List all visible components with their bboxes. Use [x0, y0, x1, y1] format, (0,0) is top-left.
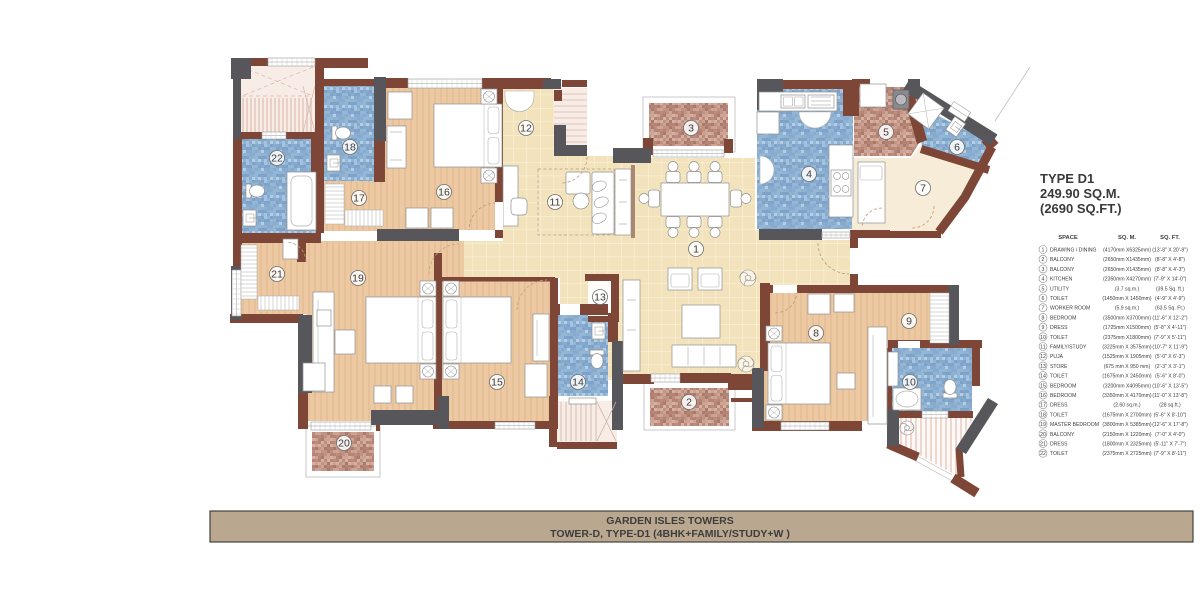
svg-text:20: 20 [338, 438, 350, 450]
svg-text:KITCHEN: KITCHEN [1050, 277, 1073, 283]
svg-text:(5'-11" X 7'-7"): (5'-11" X 7'-7") [1154, 442, 1187, 448]
svg-text:9: 9 [1042, 325, 1045, 331]
svg-text:7: 7 [920, 183, 926, 195]
svg-text:(3.7 sq.m.): (3.7 sq.m.) [1115, 286, 1140, 292]
svg-text:12: 12 [1040, 354, 1046, 360]
svg-text:(2375mm X1800mm): (2375mm X1800mm) [1103, 335, 1151, 341]
svg-text:BALCONY: BALCONY [1050, 267, 1075, 273]
svg-text:STORE: STORE [1050, 364, 1068, 370]
svg-text:(5'-6" X 8'-10"): (5'-6" X 8'-10") [1154, 412, 1187, 418]
svg-text:16: 16 [1040, 393, 1046, 399]
svg-text:(3500mm X3700mm): (3500mm X3700mm) [1103, 315, 1151, 321]
svg-text:(5'-0" X 6'-3"): (5'-0" X 6'-3") [1155, 354, 1185, 360]
svg-text:TOWER-D, TYPE-D1 (4BHK+FAMILY: TOWER-D, TYPE-D1 (4BHK+FAMILY/STUDY+W ) [550, 528, 790, 540]
svg-text:17: 17 [1040, 403, 1046, 409]
svg-text:DRESS: DRESS [1050, 325, 1068, 331]
svg-text:(39.5 Sq. ft.): (39.5 Sq. ft.) [1156, 286, 1184, 292]
svg-text:BEDROOM: BEDROOM [1050, 315, 1076, 321]
svg-text:(2350mm X4270mm): (2350mm X4270mm) [1103, 277, 1151, 283]
svg-text:20: 20 [1040, 432, 1046, 438]
svg-text:(4170mm X6325mm): (4170mm X6325mm) [1103, 248, 1151, 254]
svg-text:3: 3 [1042, 267, 1045, 273]
svg-text:(8'-8" X 4'-3"): (8'-8" X 4'-3") [1155, 267, 1185, 273]
svg-text:8: 8 [1042, 315, 1045, 321]
svg-text:19: 19 [352, 273, 364, 285]
svg-text:6: 6 [954, 142, 960, 154]
svg-text:DRESS: DRESS [1050, 442, 1068, 448]
svg-text:(1800mm X 2325mm): (1800mm X 2325mm) [1102, 442, 1152, 448]
svg-text:SQ. FT.: SQ. FT. [1160, 235, 1180, 241]
svg-text:(2'-3" X 3'-1"): (2'-3" X 3'-1") [1155, 364, 1185, 370]
svg-text:13: 13 [594, 292, 606, 304]
svg-text:(2690 SQ.FT.): (2690 SQ.FT.) [1040, 201, 1122, 216]
svg-text:(63.5 Sq. Ft.): (63.5 Sq. Ft.) [1155, 306, 1185, 312]
svg-text:(1525mm X 1905mm): (1525mm X 1905mm) [1102, 354, 1152, 360]
svg-text:7: 7 [1042, 306, 1045, 312]
svg-text:1: 1 [693, 244, 699, 256]
svg-text:11: 11 [550, 197, 561, 209]
svg-text:(5.9 sq.m.): (5.9 sq.m.) [1115, 306, 1140, 312]
svg-text:BEDROOM: BEDROOM [1050, 393, 1076, 399]
svg-text:19: 19 [1040, 422, 1046, 428]
svg-text:(7'-9" X 5'-11"): (7'-9" X 5'-11") [1154, 335, 1187, 341]
svg-text:GARDEN ISLES TOWERS: GARDEN ISLES TOWERS [606, 515, 734, 527]
svg-text:2: 2 [686, 397, 692, 409]
svg-text:DRAWING / DINING: DRAWING / DINING [1050, 248, 1097, 254]
svg-text:(7'-9" X 8'-11"): (7'-9" X 8'-11") [1154, 451, 1187, 457]
svg-text:(7'-0" X 4'-0"): (7'-0" X 4'-0") [1155, 432, 1185, 438]
svg-text:21: 21 [1040, 442, 1046, 448]
svg-text:UTILITY: UTILITY [1050, 286, 1070, 292]
svg-text:6: 6 [1042, 296, 1045, 302]
svg-text:(2650mm X1435mm): (2650mm X1435mm) [1103, 267, 1151, 273]
svg-text:(675 mm X 950 mm): (675 mm X 950 mm) [1104, 364, 1151, 370]
svg-text:(10'-7" X 11'-9"): (10'-7" X 11'-9") [1152, 345, 1187, 351]
svg-text:(10'-6" X 13'-5"): (10'-6" X 13'-5") [1152, 383, 1188, 389]
svg-text:(12'-6" X 17'-8"): (12'-6" X 17'-8") [1152, 422, 1188, 428]
svg-text:14: 14 [572, 377, 584, 389]
svg-text:(8'-8" X 4'-8"): (8'-8" X 4'-8") [1155, 257, 1185, 263]
svg-text:21: 21 [271, 269, 283, 281]
svg-text:(28 sq.ft.): (28 sq.ft.) [1159, 403, 1181, 409]
svg-text:10: 10 [904, 377, 916, 389]
svg-text:18: 18 [344, 142, 356, 154]
svg-text:TOILET: TOILET [1050, 412, 1068, 418]
svg-text:(2.60 sq.m.): (2.60 sq.m.) [1113, 403, 1140, 409]
svg-text:MASTER BEDROOM: MASTER BEDROOM [1050, 422, 1099, 428]
svg-text:WORKER ROOM: WORKER ROOM [1050, 306, 1090, 312]
svg-text:4: 4 [1042, 277, 1045, 283]
svg-text:18: 18 [1040, 412, 1046, 418]
svg-text:11: 11 [1040, 345, 1045, 351]
svg-text:TOILET: TOILET [1050, 335, 1068, 341]
svg-text:TYPE D1: TYPE D1 [1040, 171, 1094, 186]
svg-text:8: 8 [813, 328, 819, 340]
svg-text:(5'-8" X 4'-11"): (5'-8" X 4'-11") [1154, 325, 1187, 331]
svg-text:(5'-6" X 8'-0"): (5'-6" X 8'-0") [1155, 374, 1185, 380]
svg-text:15: 15 [491, 377, 503, 389]
svg-text:2: 2 [1042, 257, 1045, 263]
svg-text:15: 15 [1040, 383, 1046, 389]
svg-text:22: 22 [271, 153, 283, 165]
svg-text:FAMILY/STUDY: FAMILY/STUDY [1050, 345, 1087, 351]
svg-text:TOILET: TOILET [1050, 374, 1068, 380]
svg-text:(11'-6" X 12'-2"): (11'-6" X 12'-2") [1152, 315, 1187, 321]
svg-text:DRESS: DRESS [1050, 403, 1068, 409]
svg-text:(1675mm X 2450mm): (1675mm X 2450mm) [1102, 374, 1152, 380]
svg-text:17: 17 [353, 193, 365, 205]
svg-text:(4'-9" X 4'-9"): (4'-9" X 4'-9") [1155, 296, 1185, 302]
svg-text:(2375mm X 2725mm): (2375mm X 2725mm) [1102, 451, 1152, 457]
svg-text:10: 10 [1040, 335, 1046, 341]
svg-text:PUJA: PUJA [1050, 354, 1064, 360]
svg-text:BALCONY: BALCONY [1050, 432, 1075, 438]
svg-text:TOILET: TOILET [1050, 296, 1068, 302]
svg-text:3: 3 [688, 123, 694, 135]
svg-text:(1675mm X 2700mm): (1675mm X 2700mm) [1102, 412, 1152, 418]
svg-text:249.90 SQ.M.: 249.90 SQ.M. [1040, 186, 1120, 201]
svg-text:BEDROOM: BEDROOM [1050, 383, 1076, 389]
svg-text:5: 5 [883, 127, 889, 139]
svg-text:(3800mm X 5385mm): (3800mm X 5385mm) [1102, 422, 1152, 428]
svg-text:22: 22 [1040, 451, 1046, 457]
svg-text:14: 14 [1040, 374, 1046, 380]
svg-text:13: 13 [1040, 364, 1046, 370]
svg-text:(11'-0" X 13'-8"): (11'-0" X 13'-8") [1152, 393, 1187, 399]
svg-text:(3225mm X 3575mm): (3225mm X 3575mm) [1102, 345, 1152, 351]
svg-text:(2650mm X1435mm): (2650mm X1435mm) [1103, 257, 1151, 263]
svg-text:(2150mm X 1220mm): (2150mm X 1220mm) [1102, 432, 1152, 438]
svg-text:(7'-9" X 14'-0"): (7'-9" X 14'-0") [1154, 277, 1187, 283]
svg-text:4: 4 [806, 169, 812, 181]
svg-text:(1450mm X 1450mm): (1450mm X 1450mm) [1102, 296, 1152, 302]
svg-text:(3350mm X 4170mm): (3350mm X 4170mm) [1102, 393, 1152, 399]
svg-text:(13'-8" X 20'-9"): (13'-8" X 20'-9") [1152, 248, 1188, 254]
svg-text:9: 9 [906, 316, 912, 328]
svg-text:16: 16 [438, 187, 450, 199]
svg-text:(3200mm X4095mm): (3200mm X4095mm) [1103, 383, 1151, 389]
svg-text:SPACE: SPACE [1058, 235, 1078, 241]
svg-text:BALCONY: BALCONY [1050, 257, 1075, 263]
svg-text:12: 12 [520, 123, 532, 135]
svg-text:(1725mm X1500mm): (1725mm X1500mm) [1103, 325, 1151, 331]
svg-text:TOILET: TOILET [1050, 451, 1068, 457]
svg-text:5: 5 [1042, 286, 1045, 292]
svg-text:SQ. M.: SQ. M. [1118, 235, 1136, 241]
svg-text:1: 1 [1042, 248, 1045, 254]
